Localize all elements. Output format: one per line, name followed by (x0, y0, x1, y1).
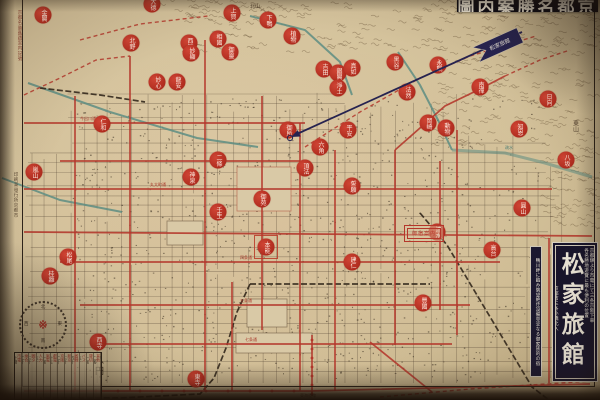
ryokan-ad-box: 京都驛より市電にて三条京阪下車 各名勝地遊覽に最も便利の位置 松家旅館 京都市三… (552, 242, 598, 382)
ryokan-name: 松家旅館 (558, 248, 583, 376)
ryokan-ad-content: 京都驛より市電にて三条京阪下車 各名勝地遊覽に最も便利の位置 松家旅館 京都市三… (556, 248, 594, 376)
map-paper: 丸太町通四条通五条通七条通今出川通疏水東山北山東海道線 金閣大德上賀下鴨北野西陣… (0, 0, 600, 400)
map-title-strip: 圖内案勝名都京 (457, 0, 598, 12)
location-arrow-layer: 松家旅館 (0, 0, 600, 400)
ryokan-ad-side-banner: 鴨川畔に臨み眺望絶佳設備完全なる御家族的の宿 (530, 246, 542, 377)
map-photo: 丸太町通四条通五条通七条通今出川通疏水東山北山東海道線 金閣大德上賀下鴨北野西陣… (0, 0, 600, 400)
ad-access-note-2: 各名勝地遊覽に最も便利の位置 (583, 248, 588, 376)
map-title-text: 圖内案勝名都京 (457, 0, 598, 12)
ad-access-note-1: 京都驛より市電にて三条京阪下車 (589, 248, 594, 376)
